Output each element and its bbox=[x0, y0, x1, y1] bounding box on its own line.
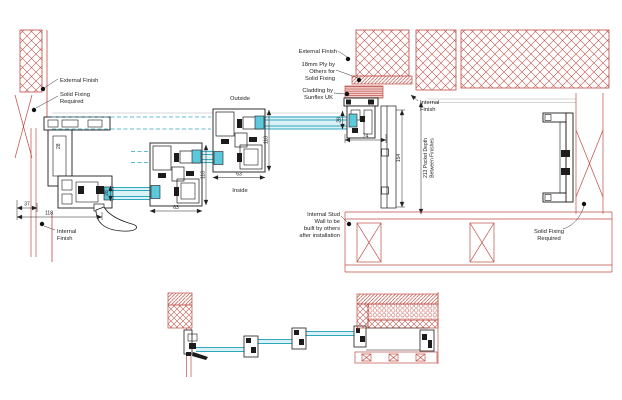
glass-panel-2 bbox=[202, 150, 214, 164]
svg-text:Finish: Finish bbox=[57, 236, 72, 242]
internal-finish-label-left: Internal Finish bbox=[40, 222, 77, 242]
svg-text:Wall to be: Wall to be bbox=[314, 219, 340, 225]
cad-drawing-page: External Finish Solid Fixing Required 28 bbox=[0, 0, 622, 400]
glass-panel-1: 28 bbox=[104, 186, 151, 201]
outside-label: Outside bbox=[230, 96, 250, 102]
svg-text:Sunflex UK: Sunflex UK bbox=[304, 95, 333, 101]
glass-spacer bbox=[349, 114, 357, 127]
cladding-board bbox=[345, 86, 383, 98]
pocket-inner-depth-dim: 154 bbox=[396, 154, 402, 163]
lock-jamb-frame bbox=[44, 117, 137, 231]
lock-jamb-width-dim: 118 bbox=[45, 211, 53, 217]
right-stud-wall bbox=[576, 93, 603, 214]
stud-noggin bbox=[470, 223, 494, 262]
pocket-depth-dim-line2: Between Finishes bbox=[430, 138, 436, 178]
svg-text:Cladding by: Cladding by bbox=[302, 88, 333, 94]
svg-text:18mm Ply by: 18mm Ply by bbox=[301, 62, 335, 68]
lock-jamb-offset-dim: 37 bbox=[24, 202, 30, 208]
left-wall-section bbox=[15, 30, 52, 262]
svg-text:Required: Required bbox=[60, 99, 84, 105]
leader-dot bbox=[32, 108, 36, 112]
right-wall-band bbox=[345, 30, 609, 98]
svg-text:built by others: built by others bbox=[304, 226, 340, 232]
pocket-depth-dim-line1: 213 Pocket Depth bbox=[423, 138, 429, 178]
overview-glass-panels bbox=[196, 331, 356, 352]
interlock-depth-1: 118 bbox=[201, 171, 207, 179]
overview-pocket bbox=[366, 328, 434, 351]
interlock-frame-2 bbox=[213, 109, 265, 172]
svg-text:External Finish: External Finish bbox=[299, 49, 337, 55]
inside-label: Inside bbox=[232, 188, 247, 194]
stud-noggin bbox=[357, 223, 381, 262]
internal-finish-label-right: Internal Finish bbox=[411, 95, 439, 113]
leader-dot bbox=[41, 87, 45, 91]
pocket-liner-post bbox=[381, 106, 396, 208]
interlock-width-1: 63 bbox=[173, 205, 179, 211]
svg-text:Required: Required bbox=[537, 236, 561, 242]
internal-finish-line bbox=[428, 99, 576, 103]
solid-fixing-label-left: Solid Fixing Required bbox=[32, 92, 90, 112]
internal-stud-label: Internal Stud Wall to be built by others… bbox=[299, 212, 351, 239]
glass-dim-left: 28 bbox=[104, 190, 110, 196]
svg-text:Solid Fixing: Solid Fixing bbox=[534, 229, 564, 235]
insulation-layer bbox=[368, 304, 438, 320]
pocket-entry-frame bbox=[344, 98, 378, 138]
internal-stud-wall bbox=[345, 212, 612, 272]
external-finish-label-left: External Finish bbox=[41, 78, 99, 91]
overview-stud-band bbox=[355, 352, 437, 363]
svg-text:Internal: Internal bbox=[57, 229, 76, 235]
external-finish-left-text: External Finish bbox=[60, 78, 98, 84]
interlock-depth-2: 118 bbox=[264, 136, 270, 144]
interlock-width-2: 63 bbox=[236, 172, 242, 178]
interlock-frame-1 bbox=[150, 143, 202, 206]
external-finish-label-right: External Finish bbox=[299, 49, 351, 61]
glass-dim-right: 28 bbox=[337, 117, 343, 123]
solid-fixing-label-right: Solid Fixing Required bbox=[534, 202, 586, 242]
top-detail-drawing: External Finish Solid Fixing Required 28 bbox=[15, 30, 612, 272]
svg-text:Solid Fixing: Solid Fixing bbox=[60, 92, 90, 98]
svg-text:Internal Stud: Internal Stud bbox=[307, 212, 340, 218]
frame-depth-dim: 28 bbox=[56, 143, 62, 149]
pocket-receiver-frame bbox=[543, 113, 573, 202]
svg-text:Finish: Finish bbox=[420, 107, 435, 113]
overview-handle bbox=[192, 352, 208, 360]
bottom-overview-drawing bbox=[168, 292, 438, 377]
svg-text:after installation: after installation bbox=[299, 233, 340, 239]
svg-text:Others for: Others for bbox=[309, 69, 335, 75]
drawing-canvas: External Finish Solid Fixing Required 28 bbox=[0, 0, 622, 400]
overview-lock-jamb bbox=[184, 330, 208, 360]
pocket-entry-width-dim: 74 bbox=[363, 134, 369, 140]
svg-text:Solid Fixing: Solid Fixing bbox=[305, 76, 335, 82]
svg-text:Internal: Internal bbox=[420, 100, 439, 106]
cladding-label: Cladding by Sunflex UK bbox=[302, 88, 349, 101]
